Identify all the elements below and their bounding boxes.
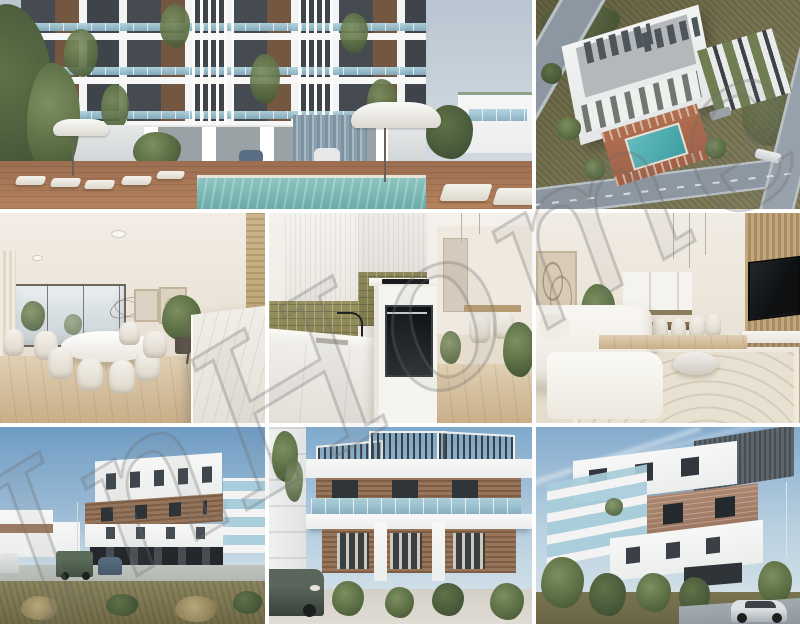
marble-island xyxy=(191,305,265,423)
balcony-plants xyxy=(340,13,368,53)
balcony-plants xyxy=(605,498,623,516)
timber-floor-edge xyxy=(599,335,747,350)
tree xyxy=(557,117,581,140)
pier xyxy=(374,522,387,581)
bush xyxy=(106,594,138,616)
suv-headlight xyxy=(310,585,321,591)
tree xyxy=(636,573,670,612)
sun-lounger xyxy=(49,178,81,187)
pier xyxy=(432,522,445,581)
tree xyxy=(541,63,562,84)
parasol xyxy=(351,102,441,128)
tv-screen xyxy=(748,256,800,321)
louvre-screen xyxy=(298,0,335,128)
lower-floor-windows xyxy=(106,527,207,539)
balcony-tree-view xyxy=(64,314,83,335)
photo-tile-kitchen[interactable] xyxy=(269,213,532,423)
sun-lounger xyxy=(84,180,116,189)
built-in-oven xyxy=(385,305,434,376)
glazed-door xyxy=(337,533,369,568)
dining-chair xyxy=(119,322,140,345)
oven-handle xyxy=(387,312,426,314)
parked-car xyxy=(239,150,263,160)
pendant-light xyxy=(689,213,690,268)
suv-wheel xyxy=(82,572,90,580)
pendant-light xyxy=(461,213,462,242)
background-building-glass xyxy=(468,109,527,122)
dining-table-edge xyxy=(464,305,522,311)
photo-tile-living-room[interactable] xyxy=(536,213,800,423)
parked-car xyxy=(0,553,19,573)
shrub xyxy=(490,583,524,620)
suv-wheel xyxy=(61,572,69,580)
shrub xyxy=(432,583,464,616)
sun-lounger xyxy=(156,171,185,179)
balcony-plants xyxy=(250,54,280,104)
sofa-cushion xyxy=(539,314,571,339)
indoor-plant xyxy=(503,322,532,377)
pendant-light xyxy=(705,213,706,255)
hanging-plants xyxy=(285,459,303,502)
floating-console xyxy=(742,331,800,344)
balcony-plants xyxy=(160,4,190,48)
tall-cabinet xyxy=(285,213,359,301)
tree xyxy=(584,159,605,180)
ceiling-spotlight xyxy=(32,255,43,261)
tree xyxy=(758,561,792,604)
louvre-screen xyxy=(192,0,235,128)
photo-tile-aerial-view[interactable] xyxy=(536,0,800,209)
pendant-light xyxy=(673,213,674,259)
photo-tile-corner-view[interactable] xyxy=(536,427,800,624)
pool xyxy=(197,175,426,209)
photo-tile-dining-room[interactable] xyxy=(0,213,265,423)
tree xyxy=(541,557,583,608)
rear-door-panel xyxy=(443,238,469,311)
pendant-light xyxy=(479,213,480,234)
dry-bush xyxy=(21,596,58,620)
dining-chair xyxy=(143,331,167,358)
neighbour-house xyxy=(0,510,53,557)
sun-lounger-foreground xyxy=(439,184,492,201)
glazed-door xyxy=(453,533,485,568)
dining-chair xyxy=(48,347,73,379)
glazed-door xyxy=(390,533,422,568)
photo-tile-exterior-pool[interactable] xyxy=(0,0,532,209)
photo-collage: InHome xyxy=(0,0,800,624)
parked-car xyxy=(98,557,122,575)
dining-chair xyxy=(469,314,490,343)
street-light-pole xyxy=(786,482,787,557)
dining-chair xyxy=(3,329,24,356)
cooktop xyxy=(382,279,429,284)
shrub xyxy=(332,581,364,616)
tree xyxy=(705,138,726,159)
dining-chair xyxy=(705,314,721,337)
neighbour-house-band xyxy=(0,524,53,534)
sun-lounger xyxy=(121,176,153,185)
car-wheel xyxy=(772,613,782,623)
parasol xyxy=(53,119,109,136)
photo-tile-rear-elevation[interactable] xyxy=(269,427,532,624)
upper-windows xyxy=(332,480,500,498)
shrub xyxy=(385,587,414,619)
balcony-plants xyxy=(64,29,98,77)
dry-bush xyxy=(175,596,217,622)
balcony-glass-upper xyxy=(311,498,521,514)
coffee-table-tray xyxy=(673,352,718,375)
balcony-slab xyxy=(306,514,532,530)
parked-car xyxy=(314,148,341,161)
tree xyxy=(589,573,626,616)
sofa-chaise xyxy=(547,352,663,419)
dining-chair xyxy=(109,360,136,394)
ceiling-spotlight xyxy=(111,230,126,238)
wall-art xyxy=(134,289,159,322)
parapet-band xyxy=(306,459,532,479)
sun-lounger xyxy=(14,176,46,185)
car-window xyxy=(745,601,777,608)
sun-lounger-foreground xyxy=(492,188,532,205)
photo-tile-street-view[interactable] xyxy=(0,427,265,624)
upper-cabinet xyxy=(358,213,426,272)
indoor-plant xyxy=(440,331,461,365)
balcony-tree-view xyxy=(21,301,45,330)
balcony-slabs xyxy=(223,478,265,553)
dining-chair xyxy=(77,358,104,392)
